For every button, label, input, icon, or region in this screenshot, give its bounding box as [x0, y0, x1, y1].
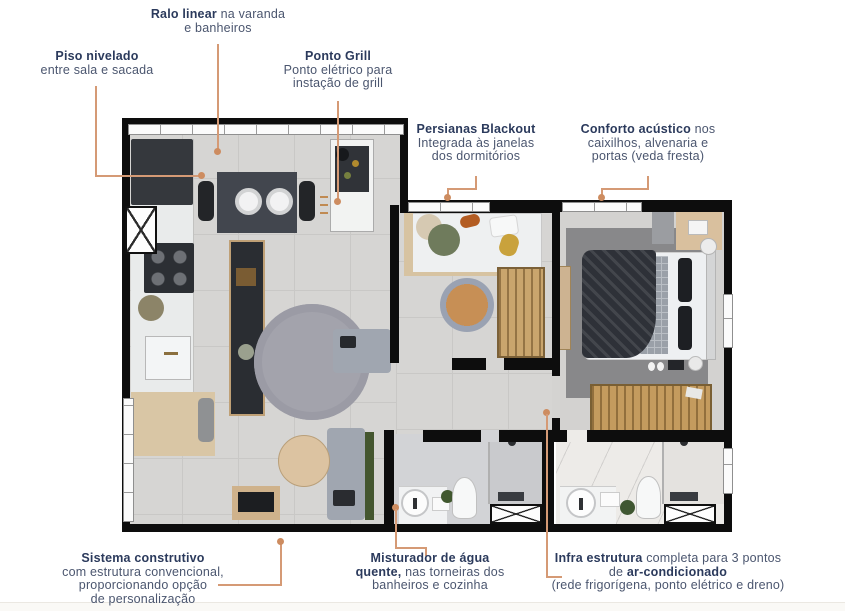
callout-misturador-line2: quente, nas torneiras dos — [340, 566, 520, 580]
bathroom2-shower-bench — [670, 492, 698, 501]
callout-piso-nivelado: Piso nivelado entre sala e sacada — [17, 50, 177, 77]
leader-sistema-dot — [277, 538, 284, 545]
wall-bottom — [122, 524, 732, 532]
callout-grill-line1: Ponto Grill — [258, 50, 418, 64]
dining-chair-right — [299, 181, 315, 221]
callout-sistema-line3: proporcionando opção — [33, 579, 253, 593]
kitchen-sink — [145, 336, 191, 380]
wall-between-bathrooms — [542, 430, 554, 524]
leader-misturador-vertical — [395, 509, 397, 549]
shaft-kitchen — [125, 206, 157, 254]
callout-conforto-line2: caixilhos, alvenaria e — [563, 137, 733, 151]
door-bedroom2 — [486, 358, 504, 370]
window-bathroom2-right — [723, 448, 733, 494]
leader-grill-vertical — [337, 101, 339, 201]
desk-laptop — [688, 220, 708, 235]
plate-right — [266, 188, 293, 215]
leader-persianas-dot — [444, 194, 451, 201]
leader-misturador-horizontal — [395, 547, 427, 549]
toilet-1 — [452, 477, 477, 519]
callout-infra-line1: Infra estrutura completa para 3 pontos — [548, 552, 788, 566]
grill-handle-1 — [320, 196, 328, 198]
callout-sistema-line1: Sistema construtivo — [33, 552, 253, 566]
kitchen-faucet — [164, 352, 178, 355]
island-vase — [238, 344, 254, 360]
callout-misturador-line3: banheiros e cozinha — [340, 579, 520, 593]
leader-piso-vertical — [95, 86, 97, 177]
bedside-ball-stool — [688, 356, 703, 371]
master-pillow-1 — [678, 258, 692, 302]
desk-stool — [700, 238, 717, 255]
window-balcony-top — [128, 124, 404, 135]
callout-ralo-line2: e banheiros — [128, 22, 308, 36]
master-pillow-2 — [678, 306, 692, 350]
dining-chair-left — [198, 181, 214, 221]
callout-infra-line2: de ar-condicionado — [548, 566, 788, 580]
sofa-side — [327, 428, 365, 520]
callout-persianas-blackout: Persianas Blackout Integrada às janelas … — [396, 123, 556, 164]
kitchen-island — [229, 240, 265, 416]
window-balcony-left — [123, 398, 134, 522]
master-blanket — [582, 250, 656, 358]
grill-food-2 — [344, 172, 351, 179]
window-master — [562, 202, 642, 212]
callout-persianas-line1: Persianas Blackout — [396, 123, 556, 137]
bedroom2-bed-headboard — [404, 213, 413, 276]
bedroom2-rug — [440, 278, 494, 332]
bathroom2-tray — [600, 492, 620, 507]
coffee-table — [278, 435, 330, 487]
tv — [238, 492, 274, 512]
leader-grill-dot — [334, 198, 341, 205]
callout-sistema-line4: de personalização — [33, 593, 253, 607]
callout-sistema-construtivo: Sistema construtivo com estrutura conven… — [33, 552, 253, 606]
leader-persianas-horizontal — [447, 188, 477, 190]
callout-piso-line1: Piso nivelado — [17, 50, 177, 64]
callout-ralo-linear: Ralo linear na varanda e banheiros — [128, 8, 308, 35]
master-headboard — [706, 250, 716, 360]
callout-misturador: Misturador de água quente, nas torneiras… — [340, 552, 520, 593]
leader-conforto-dot — [598, 194, 605, 201]
master-cabinet — [652, 212, 674, 244]
callout-misturador-line1: Misturador de água — [340, 552, 520, 566]
callout-persianas-line3: dos dormitórios — [396, 150, 556, 164]
sofa-pillow-1 — [340, 336, 356, 348]
door-master — [552, 376, 560, 418]
slipper-2 — [657, 362, 664, 371]
bedroom2-wardrobe — [497, 267, 545, 358]
cutting-board — [138, 295, 164, 321]
callout-conforto-line3: portas (veda fresta) — [563, 150, 733, 164]
callout-piso-line2: entre sala e sacada — [17, 64, 177, 78]
bathroom2-tap — [579, 498, 583, 510]
door-bathroom1 — [481, 430, 499, 442]
grill-food-1 — [352, 160, 359, 167]
grill-handle-3 — [320, 212, 328, 214]
floor-plan-page: Ralo linear na varanda e banheiros Piso … — [0, 0, 845, 611]
window-master-right — [723, 294, 733, 348]
wall-bedroom2-bottom — [452, 358, 558, 370]
shaft-bathroom1 — [490, 504, 542, 524]
sofa-pillow-2 — [333, 490, 355, 506]
callout-grill-line2: Ponto elétrico para — [258, 64, 418, 78]
callout-ponto-grill: Ponto Grill Ponto elétrico para instação… — [258, 50, 418, 91]
callout-conforto-line1: Conforto acústico nos — [563, 123, 733, 137]
leader-sistema-vertical — [280, 543, 282, 586]
bathroom1-shower-bench — [498, 492, 524, 501]
master-mirror-panel — [559, 266, 571, 350]
leader-conforto-horizontal — [601, 188, 649, 190]
callout-grill-line3: instação de grill — [258, 77, 418, 91]
window-bedroom2 — [408, 202, 490, 212]
callout-conforto-acustico: Conforto acústico nos caixilhos, alvenar… — [563, 123, 733, 164]
grill-handle-2 — [320, 204, 328, 206]
plate-left — [235, 188, 262, 215]
leader-piso-dot — [198, 172, 205, 179]
leader-piso-horizontal — [95, 175, 201, 177]
door-bathroom2 — [567, 430, 587, 442]
leader-ralo-vertical — [217, 44, 219, 151]
plant-strip — [365, 432, 374, 520]
pillow-sage — [428, 224, 460, 256]
callout-infra-estrutura: Infra estrutura completa para 3 pontos d… — [548, 552, 788, 593]
toilet-2 — [636, 476, 661, 519]
callout-persianas-line2: Integrada às janelas — [396, 137, 556, 151]
bedside-item — [668, 360, 684, 370]
callout-infra-line3: (rede frigorígena, ponto elétrico e dren… — [548, 579, 788, 593]
slipper-1 — [648, 362, 655, 371]
bathroom2-plant — [620, 500, 635, 515]
leader-ralo-dot — [214, 148, 221, 155]
callout-ralo-line1: Ralo linear na varanda — [128, 8, 308, 22]
balcony-chair — [198, 398, 214, 442]
callout-sistema-line2: com estrutura convencional, — [33, 566, 253, 580]
island-tray — [236, 268, 256, 286]
fridge — [131, 139, 193, 205]
bathroom1-tap — [413, 498, 417, 509]
wall-living-bedroom2 — [390, 205, 399, 363]
shaft-bathroom2 — [664, 504, 716, 524]
